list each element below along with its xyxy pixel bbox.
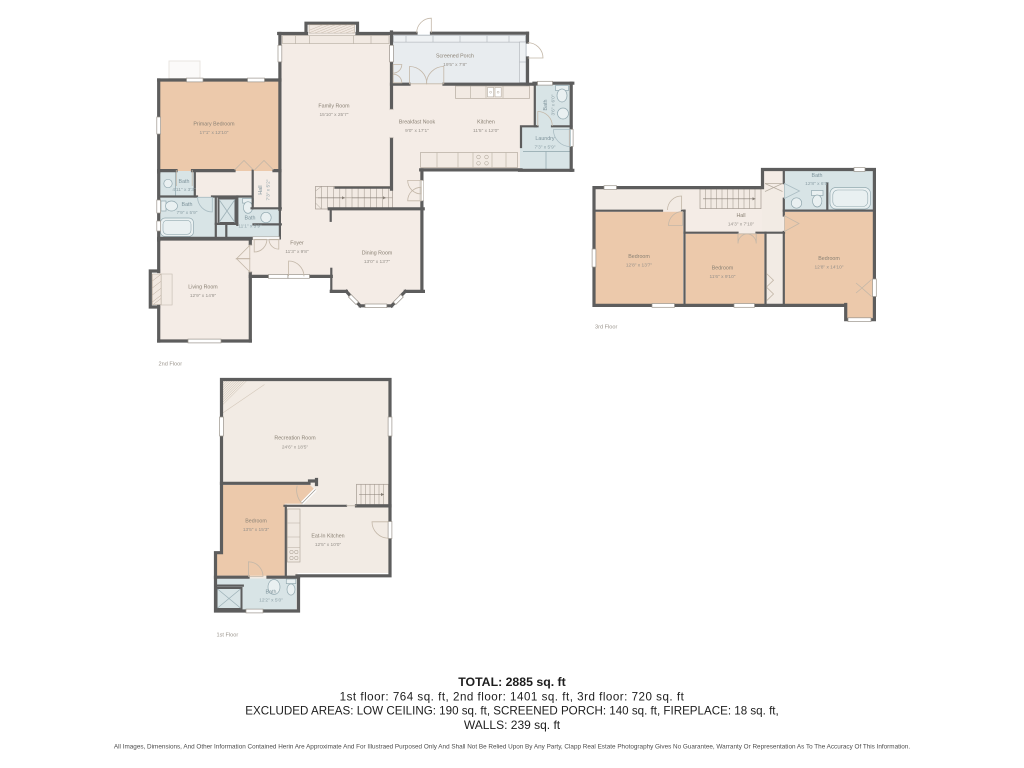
svg-text:12'9" x 14'9": 12'9" x 14'9" <box>190 293 217 299</box>
svg-text:1st floor: 764 sq. ft, 2nd flo: 1st floor: 764 sq. ft, 2nd floor: 1401 s… <box>340 691 685 704</box>
svg-text:Bath: Bath <box>266 590 277 596</box>
svg-text:13'5" x 15'3": 13'5" x 15'3" <box>243 527 270 533</box>
svg-text:Hall: Hall <box>258 185 264 194</box>
svg-text:11'6" x 9'10": 11'6" x 9'10" <box>710 274 736 280</box>
svg-text:Bath: Bath <box>179 179 190 185</box>
svg-text:Recreation Room: Recreation Room <box>274 436 316 442</box>
svg-text:15'10" x 25'7": 15'10" x 25'7" <box>320 112 349 118</box>
svg-text:Primary Bedroom: Primary Bedroom <box>193 122 235 128</box>
svg-text:Bedroom: Bedroom <box>628 254 650 260</box>
svg-text:11'1" x 5'9": 11'1" x 5'9" <box>238 224 262 230</box>
svg-text:Bath: Bath <box>182 202 193 208</box>
svg-text:Bath: Bath <box>812 173 823 179</box>
svg-text:12'5" x 10'0": 12'5" x 10'0" <box>315 542 342 548</box>
svg-text:Bedroom: Bedroom <box>712 266 734 272</box>
svg-text:Laundry: Laundry <box>535 136 554 142</box>
svg-text:3'6" x 6'0": 3'6" x 6'0" <box>551 94 557 115</box>
svg-text:7'3" x 5'9": 7'3" x 5'9" <box>535 145 556 151</box>
svg-text:24'6" x 18'5": 24'6" x 18'5" <box>282 445 309 451</box>
svg-text:4'11" x 3'3": 4'11" x 3'3" <box>172 187 196 193</box>
svg-text:Kitchen: Kitchen <box>477 120 495 126</box>
svg-text:14'3" x 7'10": 14'3" x 7'10" <box>728 222 755 228</box>
svg-text:Foyer: Foyer <box>290 241 304 247</box>
svg-text:7'9" x 5'9": 7'9" x 5'9" <box>177 210 198 216</box>
svg-text:Bath: Bath <box>245 216 256 222</box>
svg-text:TOTAL: 2885 sq. ft: TOTAL: 2885 sq. ft <box>458 675 566 689</box>
svg-text:11'3" x 9'8": 11'3" x 9'8" <box>285 249 309 255</box>
svg-text:WALLS: 239 sq. ft: WALLS: 239 sq. ft <box>464 718 561 732</box>
svg-text:Breakfast Nook: Breakfast Nook <box>399 120 436 126</box>
svg-text:Screened Porch: Screened Porch <box>436 54 474 60</box>
svg-text:Eat-In Kitchen: Eat-In Kitchen <box>311 534 344 540</box>
svg-text:17'1" x 12'10": 17'1" x 12'10" <box>200 130 229 136</box>
svg-text:Bedroom: Bedroom <box>245 519 267 525</box>
svg-text:19'5" x 7'8": 19'5" x 7'8" <box>443 62 467 68</box>
svg-text:9'0" x 17'1": 9'0" x 17'1" <box>405 128 429 134</box>
svg-text:Living Room: Living Room <box>188 285 218 291</box>
svg-text:7'3" x 5'2": 7'3" x 5'2" <box>266 179 272 200</box>
svg-text:13'0" x 13'7": 13'0" x 13'7" <box>364 259 391 265</box>
svg-text:Bath: Bath <box>543 100 549 111</box>
svg-text:2nd Floor: 2nd Floor <box>159 362 183 368</box>
svg-text:1st Floor: 1st Floor <box>217 633 239 639</box>
svg-text:3rd Floor: 3rd Floor <box>595 325 618 331</box>
svg-text:Family Room: Family Room <box>318 104 350 110</box>
svg-text:12'8" x 14'10": 12'8" x 14'10" <box>815 265 844 271</box>
svg-text:Dining Room: Dining Room <box>362 251 393 257</box>
svg-text:12'2" x 5'0": 12'2" x 5'0" <box>259 598 283 604</box>
svg-text:Hall: Hall <box>736 213 745 219</box>
svg-text:Bedroom: Bedroom <box>818 256 840 262</box>
svg-text:11'5" x 12'0": 11'5" x 12'0" <box>473 128 499 134</box>
svg-text:EXCLUDED AREAS: LOW CEILING: 1: EXCLUDED AREAS: LOW CEILING: 190 sq. ft,… <box>245 705 779 718</box>
svg-text:12'8" x 6'5": 12'8" x 6'5" <box>805 181 829 187</box>
svg-text:12'8" x 13'7": 12'8" x 13'7" <box>626 263 653 269</box>
svg-text:All Images, Dimensions, And Ot: All Images, Dimensions, And Other Inform… <box>114 744 910 751</box>
